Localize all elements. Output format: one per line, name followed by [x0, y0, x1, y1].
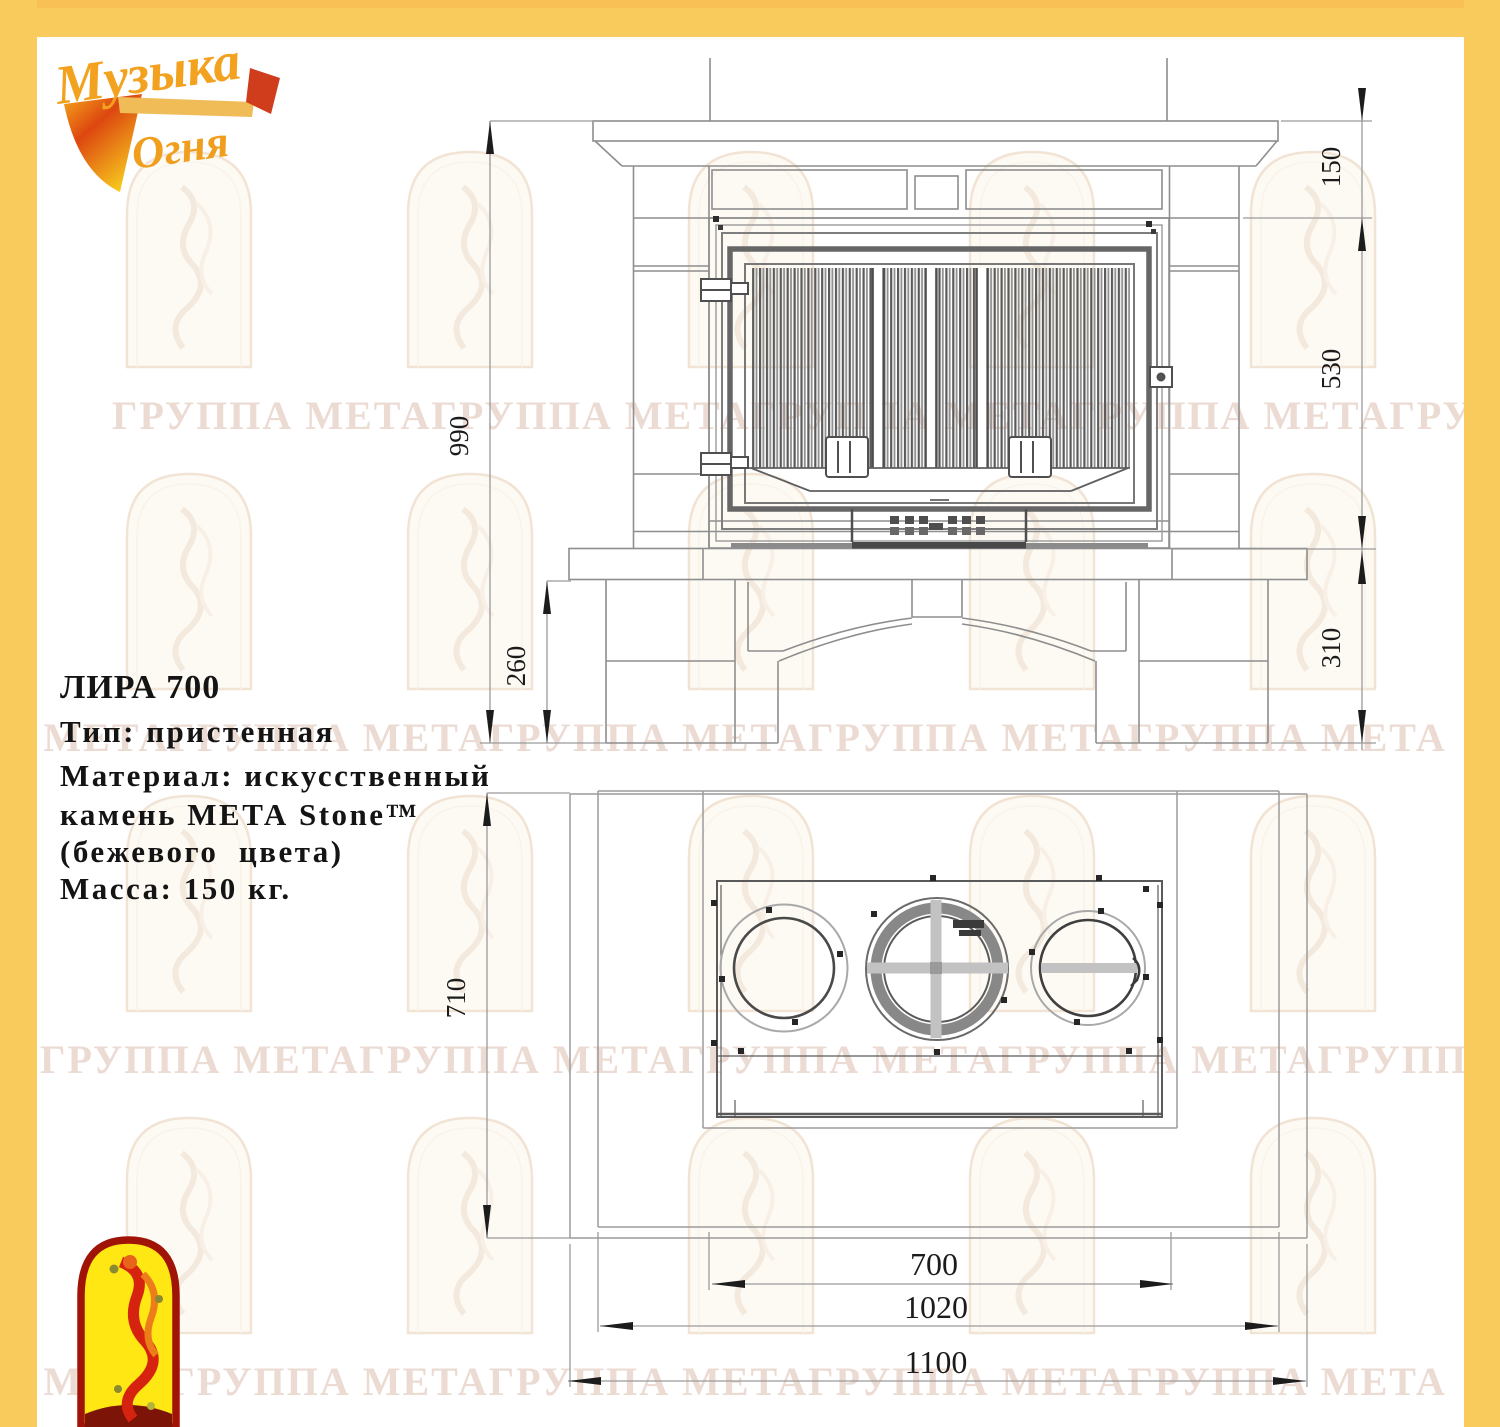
svg-text:Тип: пристенная: Тип: пристенная — [60, 714, 335, 749]
svg-text:(бежевого цвета): (бежевого цвета) — [60, 834, 344, 869]
svg-text:990: 990 — [444, 416, 474, 457]
svg-text:Масса: 150 кг.: Масса: 150 кг. — [60, 871, 292, 906]
svg-text:260: 260 — [501, 646, 531, 687]
svg-text:ЛИРА 700: ЛИРА 700 — [60, 669, 220, 706]
svg-text:310: 310 — [1316, 628, 1346, 669]
svg-text:Материал: искусственный: Материал: искусственный — [60, 758, 491, 793]
svg-text:ГРУППА МЕТАГРУППА МЕТАГРУППА М: ГРУППА МЕТАГРУППА МЕТАГРУППА МЕТАГРУППА … — [40, 1037, 1500, 1082]
svg-text:700: 700 — [910, 1246, 958, 1282]
svg-text:1100: 1100 — [905, 1344, 968, 1380]
svg-text:530: 530 — [1316, 349, 1346, 390]
svg-text:150: 150 — [1316, 147, 1346, 188]
svg-text:1020: 1020 — [904, 1289, 968, 1325]
svg-text:710: 710 — [441, 978, 471, 1019]
svg-text:камень МЕТА Stone™: камень МЕТА Stone™ — [60, 797, 419, 832]
